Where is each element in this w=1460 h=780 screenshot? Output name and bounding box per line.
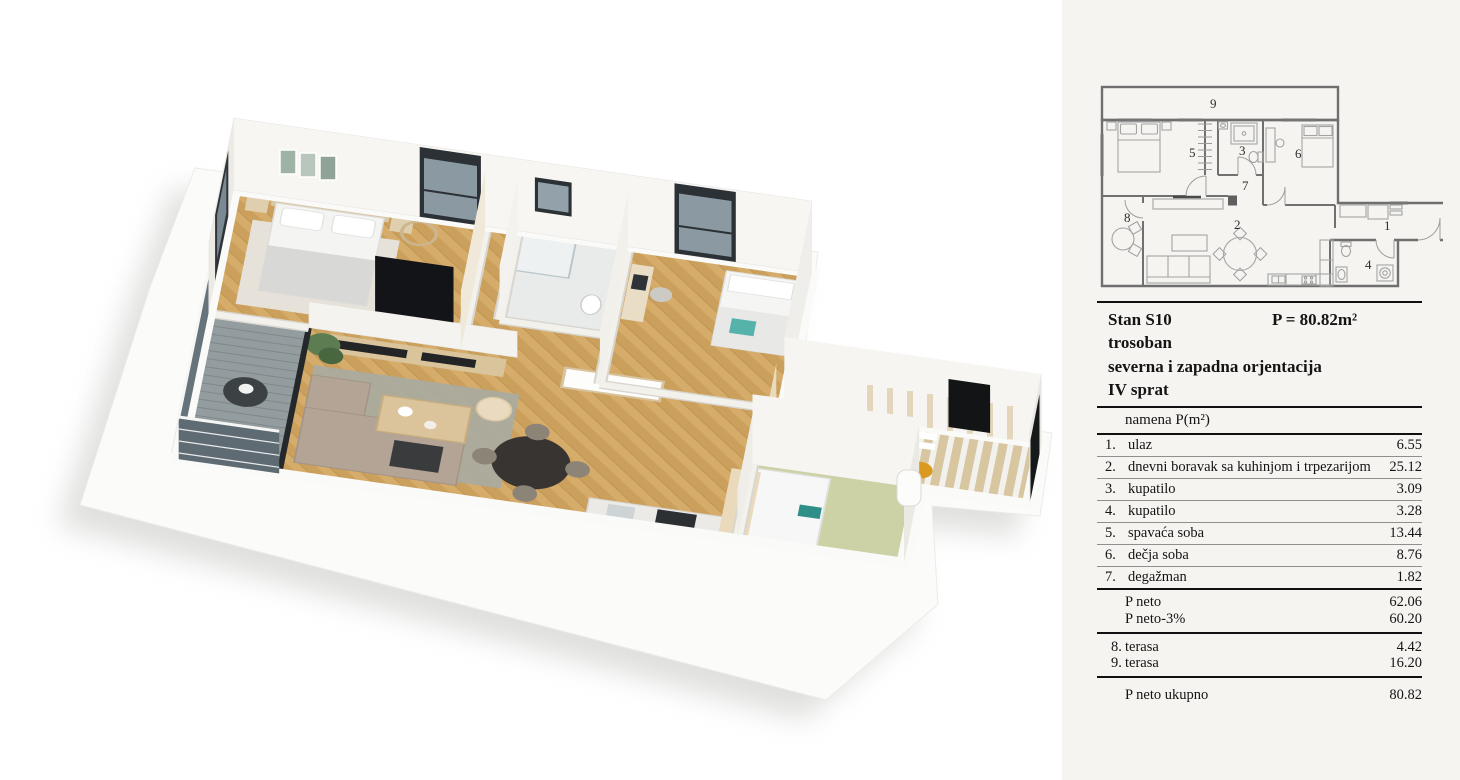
terrace-block: 8. terasa 4.42 9. terasa 16.20 bbox=[1097, 634, 1422, 676]
apartment-type: trosoban bbox=[1108, 331, 1422, 354]
table-row: 7. degažman 1.82 bbox=[1097, 567, 1422, 588]
room-label-6: 6 bbox=[1295, 146, 1302, 161]
tv-screen bbox=[375, 256, 453, 323]
room-label-2: 2 bbox=[1234, 217, 1241, 232]
floorplan-3d-render bbox=[0, 0, 1062, 780]
apartment-orientation: severna i zapadna orjentacija bbox=[1108, 355, 1422, 378]
terrace-9-outline bbox=[1102, 87, 1338, 120]
room-label-9: 9 bbox=[1210, 96, 1217, 111]
table-row: 6. dečja soba 8.76 bbox=[1097, 545, 1422, 567]
table-row: 8. terasa 4.42 bbox=[1097, 639, 1422, 656]
table-row: 1. ulaz 6.55 bbox=[1097, 435, 1422, 457]
apartment-title: Stan S10 bbox=[1108, 310, 1172, 329]
room-label-8: 8 bbox=[1124, 210, 1131, 225]
p-neto3-value: 60.20 bbox=[1389, 611, 1422, 629]
boiler bbox=[897, 470, 921, 506]
room-label-4: 4 bbox=[1365, 257, 1372, 272]
room-label-7: 7 bbox=[1242, 178, 1249, 193]
total-label: P neto ukupno bbox=[1125, 683, 1208, 707]
info-panel: 9 5 3 6 7 8 2 1 4 Stan S10 P = 80.82m² t… bbox=[1062, 0, 1460, 780]
col-area: P(m²) bbox=[1175, 412, 1210, 428]
room-label-3: 3 bbox=[1239, 143, 1246, 158]
table-row: 4. kupatilo 3.28 bbox=[1097, 501, 1422, 523]
apartment-floor: IV sprat bbox=[1108, 378, 1422, 401]
table-row: 5. spavaća soba 13.44 bbox=[1097, 523, 1422, 545]
room-label-1: 1 bbox=[1384, 218, 1391, 233]
table-row: 2. dnevni boravak sa kuhinjom i trpezari… bbox=[1097, 457, 1422, 479]
total-row: P neto ukupno 80.82 bbox=[1097, 678, 1422, 707]
apartment-info: Stan S10 P = 80.82m² trosoban severna i … bbox=[1097, 301, 1422, 707]
brochure-page: 9 5 3 6 7 8 2 1 4 Stan S10 P = 80.82m² t… bbox=[0, 0, 1460, 780]
table-row: 9. terasa 16.20 bbox=[1097, 655, 1422, 672]
p-neto3-label: P neto-3% bbox=[1125, 611, 1185, 629]
header-line-1: Stan S10 P = 80.82m² bbox=[1108, 308, 1422, 331]
wall-block bbox=[1228, 196, 1237, 206]
table-row: 3. kupatilo 3.09 bbox=[1097, 479, 1422, 501]
interior-walls bbox=[1102, 120, 1335, 286]
table-header: namena P(m²) bbox=[1097, 408, 1422, 433]
p-neto-label: P neto bbox=[1125, 594, 1161, 612]
total-value: 80.82 bbox=[1389, 683, 1422, 707]
neto-block: P neto 62.06 P neto-3% 60.20 bbox=[1097, 590, 1422, 632]
floorplan-2d-schematic: 9 5 3 6 7 8 2 1 4 bbox=[1090, 78, 1460, 302]
col-namena: namena bbox=[1125, 412, 1172, 428]
p-neto-value: 62.06 bbox=[1389, 594, 1422, 612]
total-area-label: P = 80.82m² bbox=[1272, 308, 1357, 331]
room-label-5: 5 bbox=[1189, 145, 1196, 160]
